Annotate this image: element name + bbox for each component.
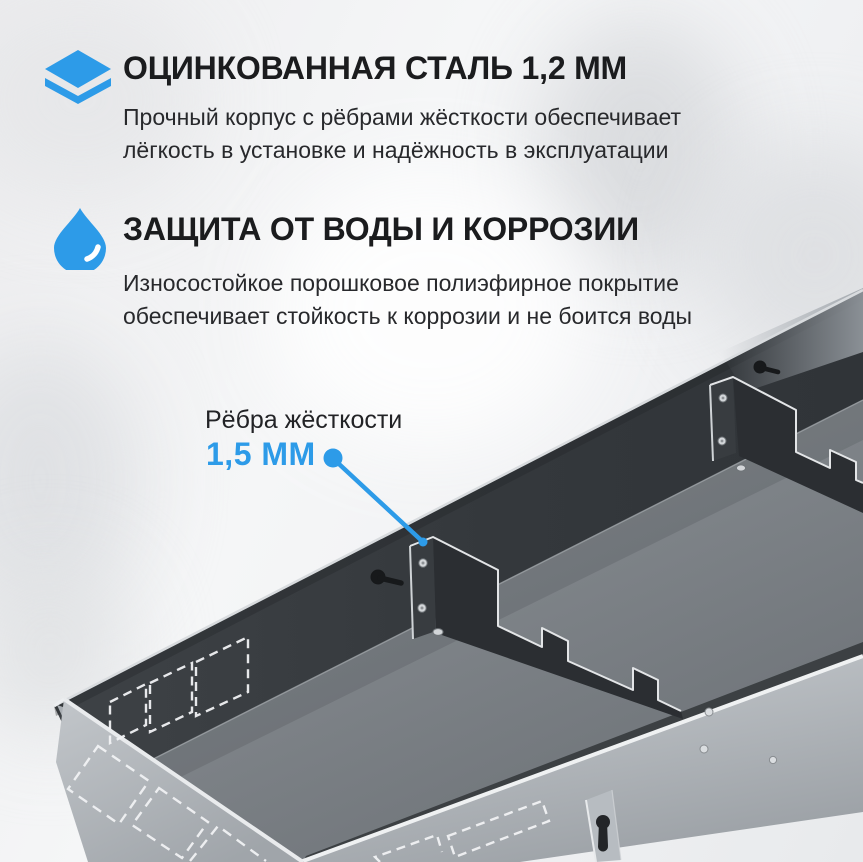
product-infographic: ОЦИНКОВАННАЯ СТАЛЬ 1,2 ММ Прочный корпус… bbox=[0, 0, 863, 862]
callout-pointer-line bbox=[0, 0, 863, 862]
